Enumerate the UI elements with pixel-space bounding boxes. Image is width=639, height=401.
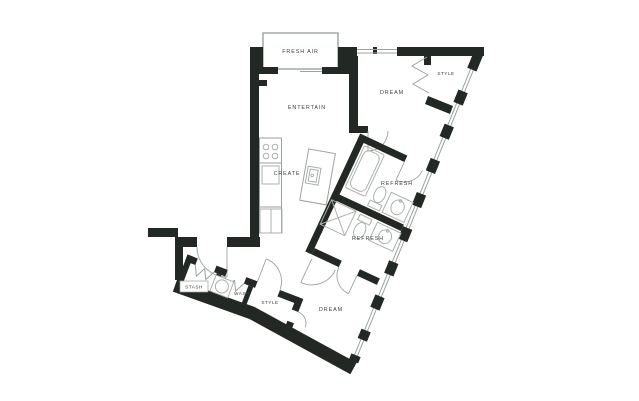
cooktop-icon — [263, 144, 278, 159]
top-wall-balcony-right — [322, 67, 338, 74]
room-label-bath-bottom: REFRESH — [352, 236, 384, 242]
interior-walls — [349, 56, 368, 133]
bedroom-bottom-entry-leaf — [301, 259, 312, 283]
closet-top — [412, 56, 453, 114]
left-wall — [250, 47, 259, 238]
bedroom-bottom-entry-arc — [301, 259, 336, 294]
bath-bottom-wall-left — [312, 248, 342, 267]
room-label-kitchen: CREATE — [274, 171, 301, 177]
balcony-corner-column — [250, 47, 263, 68]
closet-bottom-bedroom-door-arc — [294, 312, 310, 328]
bath-top-door-leaf — [396, 162, 404, 180]
top-wall-balcony-left — [259, 67, 278, 74]
room-label-storage: STASH — [185, 285, 203, 290]
room-label-closet-bottom: STYLE — [261, 300, 278, 305]
room-label-balcony: FRESH AIR — [282, 49, 319, 55]
bottom-diagonal-wall — [175, 286, 354, 369]
room-label-bedroom-bottom: DREAM — [319, 307, 343, 313]
wall-stub-left — [259, 80, 267, 86]
closet-top-pier — [424, 56, 431, 65]
closet-bottom-hall-door-leaf — [258, 259, 267, 281]
top-wall-right — [397, 47, 484, 56]
floor-plan-svg: FRESH AIR ENTERTAIN DREAM STYLE CREATE R… — [0, 0, 639, 401]
room-label-living: ENTERTAIN — [288, 105, 326, 111]
bath-bottom-door-leaf — [348, 276, 356, 294]
wash-style-divider — [241, 285, 253, 306]
kitchen-island — [300, 149, 336, 205]
room-label-closet-top: STYLE — [437, 71, 454, 76]
outer-walls — [148, 47, 484, 369]
closet-bottom-hall-door-arc — [258, 259, 289, 290]
floorplan-canvas: FRESH AIR ENTERTAIN DREAM STYLE CREATE R… — [0, 0, 639, 401]
room-label-bath-top: REFRESH — [381, 181, 413, 187]
closet-top-back-wall — [425, 96, 453, 114]
island-faucet — [311, 174, 314, 177]
room-label-bedroom-top: DREAM — [380, 90, 404, 96]
fridge-icon — [260, 209, 282, 233]
entry-wall-right — [227, 237, 260, 247]
exterior-wall-fragment — [148, 228, 178, 237]
living-bedroom-divider — [349, 56, 358, 126]
bedroom-bottom-wall-stub — [349, 126, 368, 133]
stash-bifold-door — [192, 265, 214, 282]
bath-bottom-wall-right — [357, 269, 380, 285]
room-label-laundry: WASH — [234, 291, 250, 296]
